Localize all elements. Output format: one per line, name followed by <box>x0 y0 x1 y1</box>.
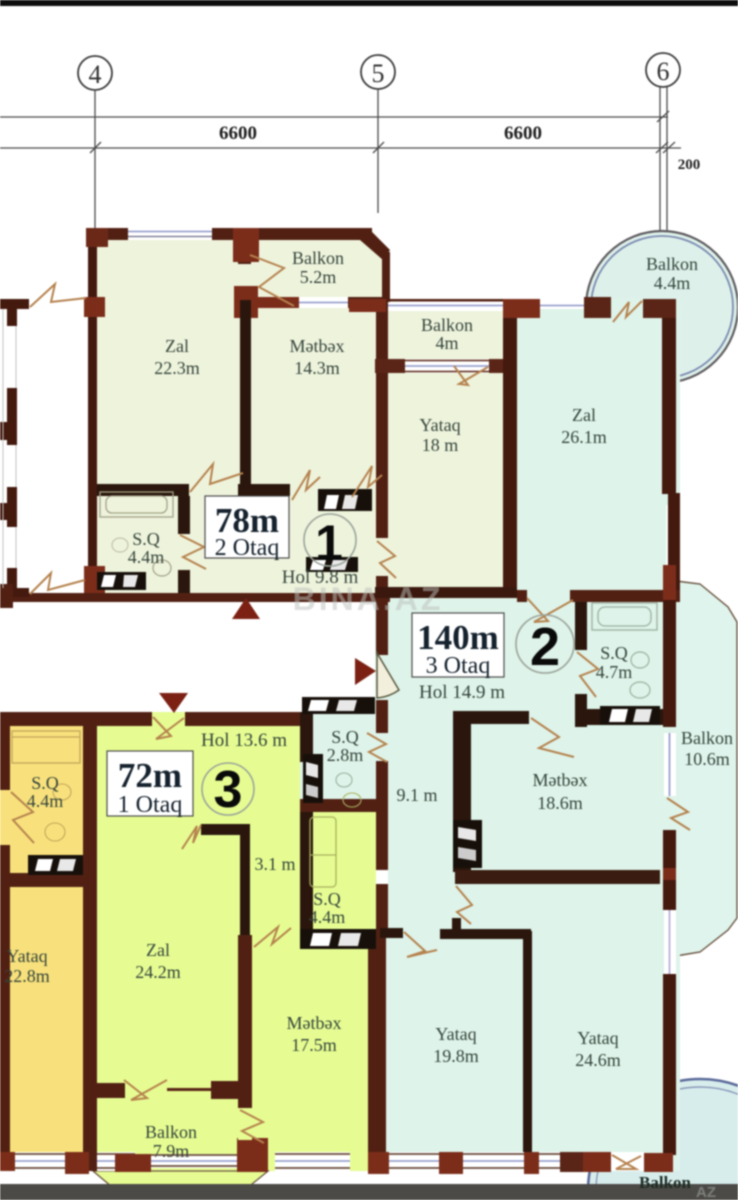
svg-text:17.5m: 17.5m <box>291 1035 337 1055</box>
svg-text:Yataq: Yataq <box>6 946 47 966</box>
svg-text:AZ: AZ <box>696 1184 716 1200</box>
svg-text:3: 3 <box>214 761 243 819</box>
svg-text:6600: 6600 <box>504 123 542 144</box>
svg-text:Yataq: Yataq <box>435 1024 476 1044</box>
svg-text:Zal: Zal <box>165 336 189 356</box>
svg-text:Balkon: Balkon <box>646 254 698 274</box>
svg-text:6: 6 <box>657 57 670 86</box>
svg-text:S.Q: S.Q <box>600 643 628 663</box>
svg-text:BINA.AZ: BINA.AZ <box>293 581 444 617</box>
svg-text:4.4m: 4.4m <box>27 791 64 811</box>
svg-text:4: 4 <box>89 60 102 89</box>
svg-text:Zal: Zal <box>146 940 170 960</box>
svg-text:22.8m: 22.8m <box>4 966 50 986</box>
svg-text:Zal: Zal <box>572 405 596 425</box>
svg-text:S.Q: S.Q <box>331 727 359 747</box>
svg-text:3 Otaq: 3 Otaq <box>426 653 491 679</box>
svg-text:2.8m: 2.8m <box>327 745 364 765</box>
svg-text:Balkon: Balkon <box>421 315 473 335</box>
svg-text:Balkon: Balkon <box>639 1173 692 1192</box>
svg-text:4m: 4m <box>435 333 458 353</box>
svg-text:19.8m: 19.8m <box>433 1046 479 1066</box>
svg-text:72m: 72m <box>118 756 182 795</box>
svg-text:4.4m: 4.4m <box>128 547 165 567</box>
svg-text:2: 2 <box>530 617 560 677</box>
svg-text:Mətbəx: Mətbəx <box>287 1013 342 1033</box>
svg-text:S.Q: S.Q <box>31 773 59 793</box>
svg-text:4.4m: 4.4m <box>654 273 691 293</box>
svg-text:Mətbəx: Mətbəx <box>533 770 588 790</box>
svg-text:Balkon: Balkon <box>681 728 733 748</box>
svg-text:7.9m: 7.9m <box>153 1141 190 1161</box>
svg-text:Yataq: Yataq <box>577 1028 618 1048</box>
svg-text:10.6m: 10.6m <box>684 749 730 769</box>
svg-text:24.2m: 24.2m <box>135 962 181 982</box>
svg-text:Hol 13.6 m: Hol 13.6 m <box>201 730 287 751</box>
svg-text:26.1m: 26.1m <box>561 427 607 447</box>
svg-text:140m: 140m <box>417 618 499 657</box>
svg-text:6600: 6600 <box>219 123 257 144</box>
svg-text:S.Q: S.Q <box>313 889 341 909</box>
svg-text:24.6m: 24.6m <box>575 1050 621 1070</box>
svg-text:2 Otaq: 2 Otaq <box>215 535 280 561</box>
svg-text:Balkon: Balkon <box>145 1122 197 1142</box>
svg-text:Mətbəx: Mətbəx <box>290 336 345 356</box>
svg-text:1 Otaq: 1 Otaq <box>118 792 183 818</box>
svg-text:4.4m: 4.4m <box>309 907 346 927</box>
svg-text:200: 200 <box>678 157 701 173</box>
svg-text:5.2m: 5.2m <box>300 267 337 287</box>
svg-text:5: 5 <box>372 59 385 88</box>
svg-text:18 m: 18 m <box>422 435 459 455</box>
svg-text:3.1 m: 3.1 m <box>254 854 295 874</box>
svg-text:18.6m: 18.6m <box>537 793 583 813</box>
svg-text:14.3m: 14.3m <box>294 358 340 378</box>
svg-text:Hol 14.9 m: Hol 14.9 m <box>419 682 505 703</box>
svg-text:Yataq: Yataq <box>419 415 460 435</box>
svg-text:4.7m: 4.7m <box>596 662 633 682</box>
svg-text:22.3m: 22.3m <box>154 358 200 378</box>
svg-text:Balkon: Balkon <box>292 248 344 268</box>
svg-text:S.Q: S.Q <box>132 529 160 549</box>
svg-text:9.1 m: 9.1 m <box>396 785 437 805</box>
svg-text:1: 1 <box>315 515 343 571</box>
